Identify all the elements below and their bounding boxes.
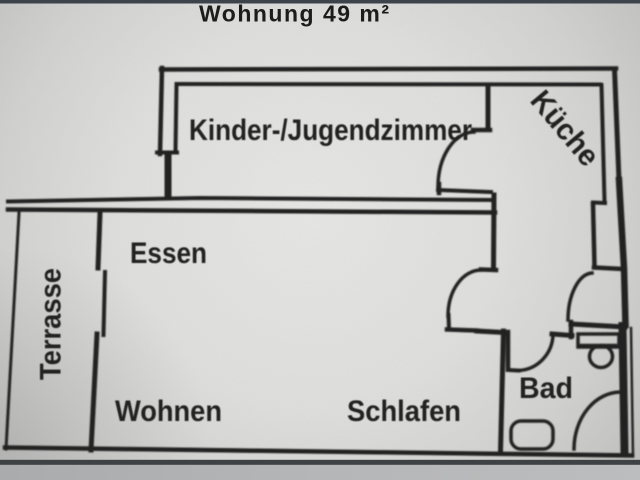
svg-text:Wohnung 49 m²: Wohnung 49 m²: [199, 1, 389, 27]
svg-text:Kinder-/Jugendzimmer: Kinder-/Jugendzimmer: [189, 114, 472, 147]
svg-text:Schlafen: Schlafen: [347, 395, 461, 428]
svg-text:Bad: Bad: [519, 372, 573, 405]
svg-text:Wohnen: Wohnen: [115, 395, 222, 428]
svg-text:Essen: Essen: [130, 237, 207, 270]
svg-text:Terrasse: Terrasse: [35, 268, 68, 380]
